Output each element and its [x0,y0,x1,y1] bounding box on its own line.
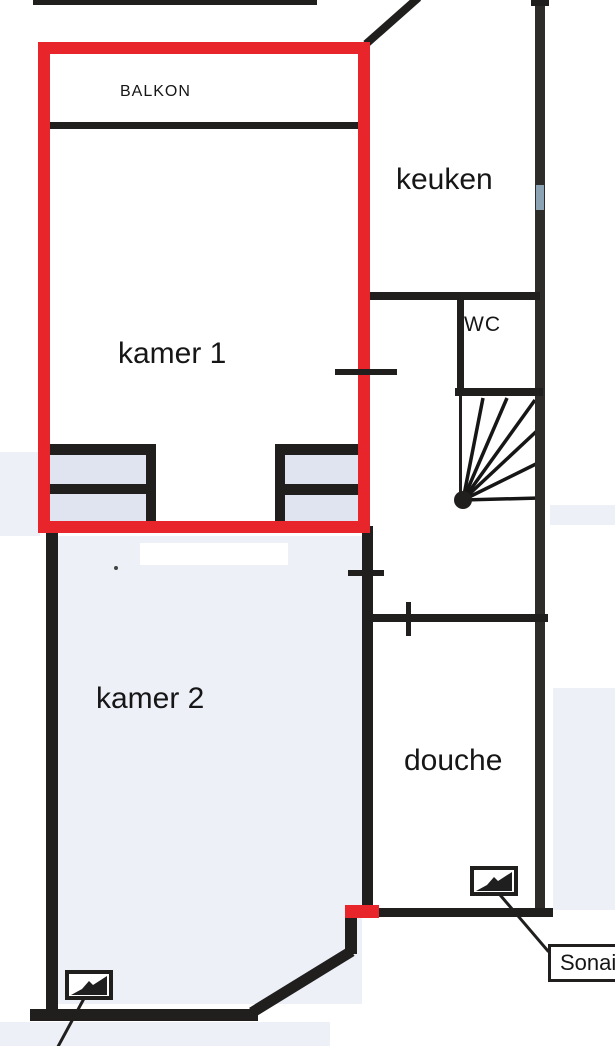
wc-room-label: WC [464,314,501,335]
kamer2-hall-divider-wall [362,526,373,912]
stairs-riser-line [459,396,462,496]
top-exterior-wall [33,0,317,5]
kamer2-detector-icon [65,970,113,1000]
balkon-room-label: BALKON [120,84,191,100]
kamer2-corner-wall [345,916,357,954]
kamer2-scan-tint [58,536,362,1004]
right-margin-tint-upper [550,505,615,525]
douche-bottom-wall [377,908,553,917]
douche-door-tick [406,602,411,636]
kamer1-room-label: kamer 1 [118,339,226,369]
small-scan-dot [114,566,118,570]
right-wall-top-cap [531,0,549,6]
douche-room-label: douche [404,746,502,776]
right-wall-scan-artifact [536,185,544,210]
sonair-callout-text: Sonair [560,950,615,975]
douche-detector-icon [470,866,518,896]
keuken-room-label: keuken [396,165,493,195]
kamer2-white-patch [140,543,288,565]
detector-wedge-glyph [474,870,514,892]
keuken-bottom-wall [362,292,540,300]
kamer2-bottom-wall [30,1009,258,1021]
stairs-newel-dot [454,491,472,509]
kamer2-room-label: kamer 2 [96,684,204,714]
kamer2-left-wall [46,528,58,1017]
wc-left-wall [457,292,464,392]
right-exterior-wall [535,0,545,915]
kamer2-door-tick [348,570,384,576]
wc-bottom-wall [455,388,543,396]
floor-plan-canvas: Sonair BALKON keuken WC kamer 1 kamer 2 … [0,0,615,1046]
left-margin-tint [0,452,40,536]
sonair-callout-box: Sonair [548,944,615,982]
top-diagonal-wall [363,0,421,47]
kamer1-door-tick [335,369,397,375]
red-door-mark [345,905,379,918]
detector-wedge-glyph [69,974,109,996]
douche-top-wall [368,614,548,622]
bottom-strip-tint [0,1022,330,1046]
right-margin-tint-lower [553,688,615,910]
red-highlight-rectangle [38,42,370,533]
